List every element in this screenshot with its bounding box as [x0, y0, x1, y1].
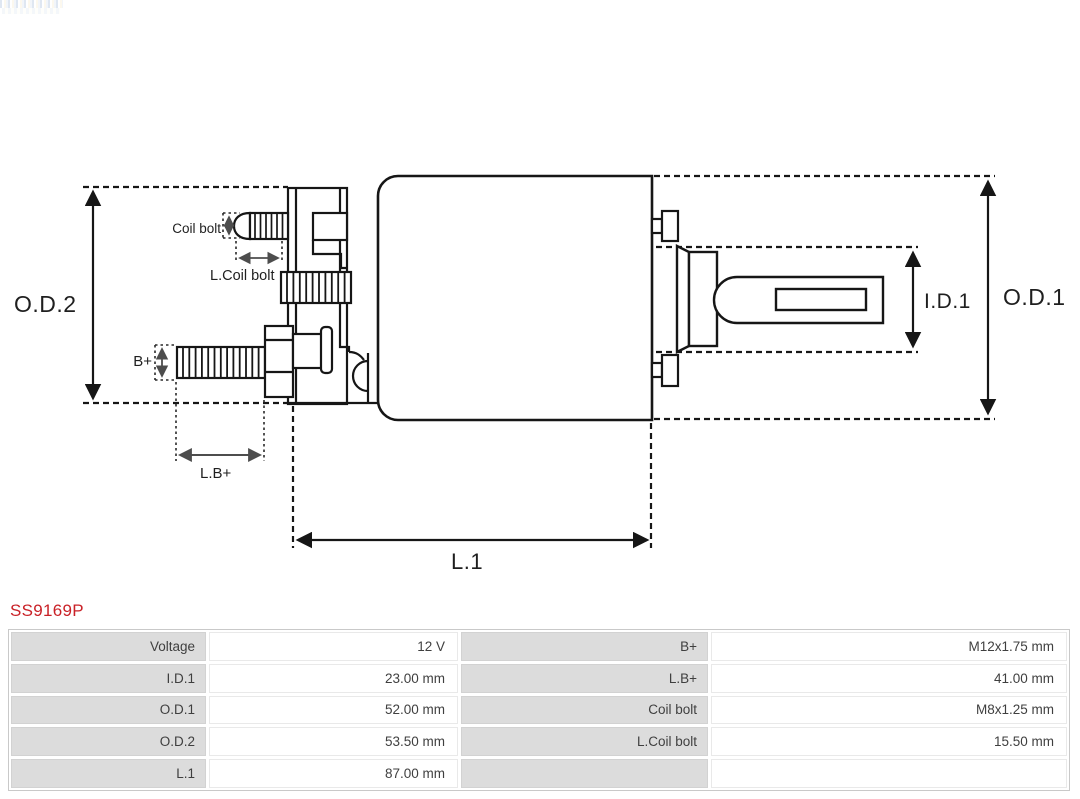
dim-label-l-b-plus: L.B+	[200, 465, 232, 482]
part-number: SS9169P	[10, 601, 84, 621]
dim-label-l-coil-bolt: L.Coil bolt	[210, 268, 274, 284]
spec-table: Voltage 12 V B+ M12x1.75 mm I.D.1 23.00 …	[8, 629, 1070, 791]
spec-value-cell: 15.50 mm	[711, 727, 1067, 756]
plunger-shaft	[677, 246, 883, 352]
spec-value-cell: 12 V	[209, 632, 458, 661]
spec-value-cell: M12x1.75 mm	[711, 632, 1067, 661]
spec-value-cell: 87.00 mm	[209, 759, 458, 788]
spec-label-cell: O.D.1	[11, 696, 206, 725]
spec-label-cell: B+	[461, 632, 708, 661]
dotted-helper-lines	[155, 213, 282, 461]
dim-label-coil-bolt: Coil bolt	[172, 221, 221, 236]
dim-label-id1: I.D.1	[924, 290, 971, 313]
spec-label-cell: Voltage	[11, 632, 206, 661]
spec-value-cell: 41.00 mm	[711, 664, 1067, 693]
spec-value-cell-empty	[711, 759, 1067, 788]
solenoid-body-outline	[177, 176, 883, 420]
spec-label-cell: I.D.1	[11, 664, 206, 693]
coil-bolt-stud	[234, 213, 288, 239]
spec-label-cell: L.1	[11, 759, 206, 788]
terminal-tabs	[652, 211, 678, 386]
dim-label-od1: O.D.1	[1003, 284, 1066, 310]
spec-label-cell: O.D.2	[11, 727, 206, 756]
dim-label-b-plus: B+	[133, 353, 152, 370]
spec-label-cell: L.Coil bolt	[461, 727, 708, 756]
spec-value-cell: 23.00 mm	[209, 664, 458, 693]
spec-value-cell: 52.00 mm	[209, 696, 458, 725]
spec-label-cell: L.B+	[461, 664, 708, 693]
solenoid-technical-drawing: O.D.2 O.D.1 I.D.1 L.1 Coil bolt L.Coil b…	[0, 0, 1080, 600]
spec-label-cell: Coil bolt	[461, 696, 708, 725]
coil-bolt-bushing	[281, 272, 351, 303]
spec-value-cell: M8x1.25 mm	[711, 696, 1067, 725]
dim-label-od2: O.D.2	[14, 291, 77, 317]
spec-label-cell-empty	[461, 759, 708, 788]
dim-label-l1: L.1	[451, 549, 483, 574]
spec-value-cell: 53.50 mm	[209, 727, 458, 756]
